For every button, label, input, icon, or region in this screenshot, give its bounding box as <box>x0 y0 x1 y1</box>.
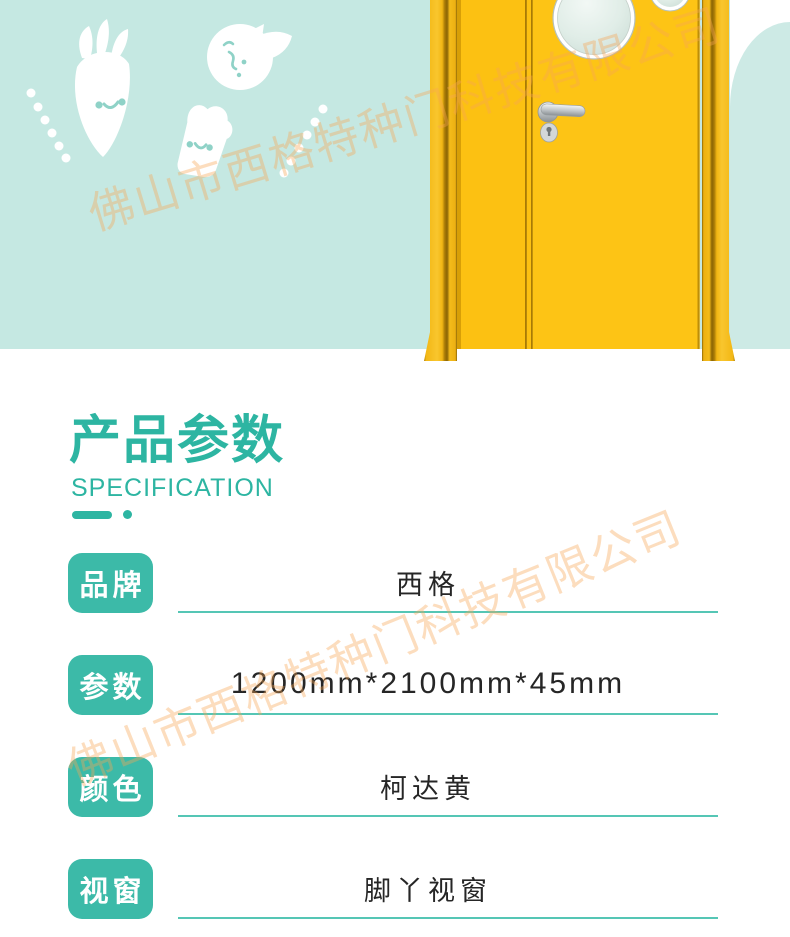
spec-value: 西格 <box>158 555 698 609</box>
spec-value: 1200mm*2100mm*45mm <box>158 657 698 711</box>
spec-underline <box>178 815 718 817</box>
dot-trail-left-icon <box>27 89 71 163</box>
spec-underline <box>178 917 718 919</box>
toast-icon <box>176 101 237 182</box>
door-leaf-divider <box>525 0 533 349</box>
section-title: 产品参数 <box>69 414 285 469</box>
door-frame-right <box>702 0 735 361</box>
spec-label-badge: 参数 <box>68 655 153 715</box>
door-frame-left <box>424 0 457 361</box>
spec-label-badge: 视窗 <box>68 859 153 919</box>
spec-row-color: 颜色 柯达黄 <box>0 757 790 817</box>
spec-row-window: 视窗 脚丫视窗 <box>0 859 790 919</box>
orange-icon <box>207 24 292 90</box>
dot-trail-right-icon <box>280 105 328 178</box>
title-underline-mark <box>72 510 132 519</box>
spec-label-badge: 颜色 <box>68 757 153 817</box>
product-spec-page: 佛山市西格特种门科技有限公司 佛山市西格特种门科技有限公司 产品参数 SPECI… <box>0 0 790 937</box>
spec-row-brand: 品牌 西格 <box>0 553 790 613</box>
door-keyhole-icon <box>541 123 558 142</box>
carrot-icon <box>75 19 130 157</box>
spec-value: 柯达黄 <box>158 759 698 813</box>
title-dash <box>72 511 112 519</box>
spec-underline <box>178 713 718 715</box>
section-subtitle: SPECIFICATION <box>71 474 274 503</box>
title-dot <box>123 510 132 519</box>
spec-value: 脚丫视窗 <box>158 861 698 915</box>
spec-table: 品牌 西格 参数 1200mm*2100mm*45mm 颜色 柯达黄 视窗 脚丫… <box>0 553 790 919</box>
spec-row-size: 参数 1200mm*2100mm*45mm <box>0 655 790 715</box>
spec-label-badge: 品牌 <box>68 553 153 613</box>
spec-underline <box>178 611 718 613</box>
door-illustration <box>422 0 740 366</box>
door-leaf-small <box>457 0 525 349</box>
